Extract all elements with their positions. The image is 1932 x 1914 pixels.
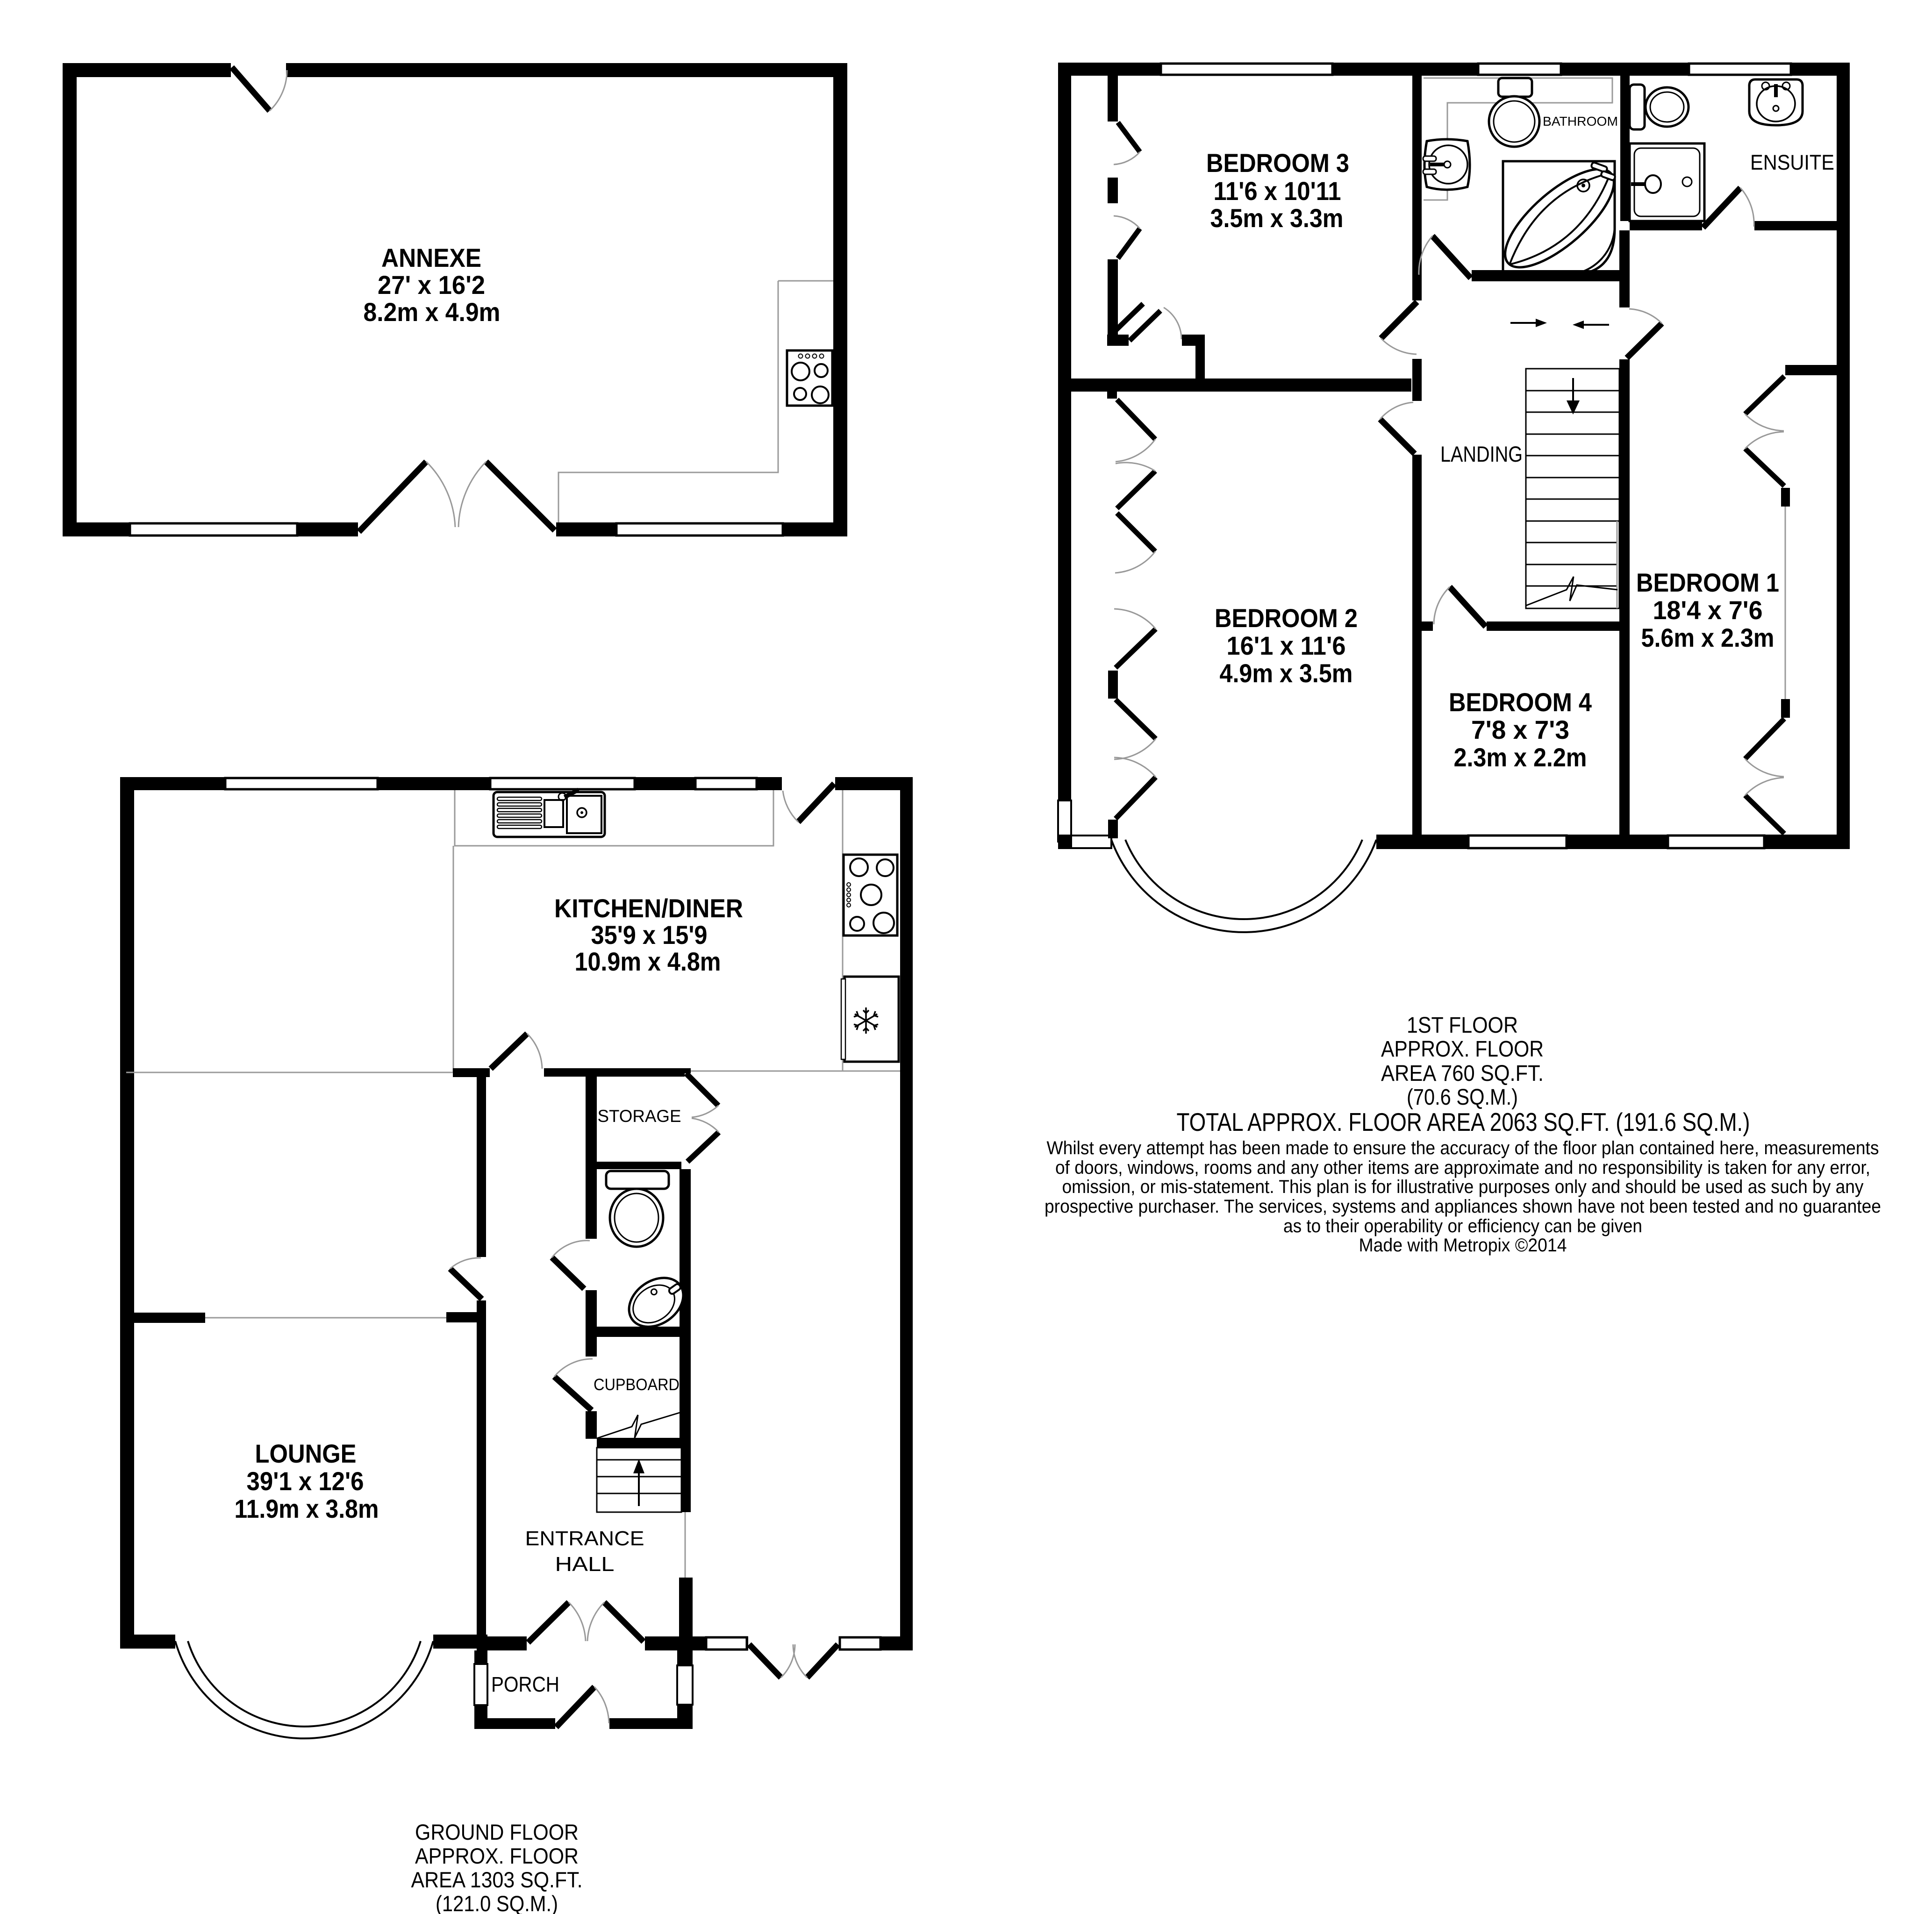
svg-text:11'6 x 10'11: 11'6 x 10'11 [1214, 176, 1341, 206]
svg-text:CUPBOARD: CUPBOARD [594, 1376, 680, 1394]
svg-text:omission, or mis-statement. Th: omission, or mis-statement. This plan is… [1062, 1177, 1864, 1197]
svg-text:27' x 16'2: 27' x 16'2 [378, 270, 485, 300]
svg-text:3.5m x 3.3m: 3.5m x 3.3m [1210, 203, 1344, 233]
svg-text:TOTAL APPROX. FLOOR AREA 2063: TOTAL APPROX. FLOOR AREA 2063 SQ.FT. (19… [1177, 1107, 1750, 1136]
svg-text:11.9m x 3.8m: 11.9m x 3.8m [235, 1494, 379, 1523]
svg-text:APPROX. FLOOR: APPROX. FLOOR [1381, 1037, 1544, 1062]
svg-text:(121.0 SQ.M.): (121.0 SQ.M.) [436, 1891, 558, 1914]
svg-text:of doors, windows, rooms and a: of doors, windows, rooms and any other i… [1055, 1157, 1870, 1178]
svg-text:(70.6 SQ.M.): (70.6 SQ.M.) [1407, 1085, 1518, 1110]
svg-text:BEDROOM 3: BEDROOM 3 [1206, 148, 1349, 178]
svg-text:LANDING: LANDING [1440, 442, 1523, 466]
svg-text:HALL: HALL [555, 1553, 615, 1576]
svg-text:APPROX. FLOOR: APPROX. FLOOR [415, 1843, 579, 1868]
svg-text:18'4 x 7'6: 18'4 x 7'6 [1653, 595, 1763, 625]
svg-text:BATHROOM: BATHROOM [1543, 114, 1618, 129]
svg-text:16'1 x 11'6: 16'1 x 11'6 [1227, 631, 1346, 660]
svg-text:LOUNGE: LOUNGE [255, 1439, 357, 1468]
svg-text:4.9m x 3.5m: 4.9m x 3.5m [1220, 658, 1353, 688]
svg-text:PORCH: PORCH [491, 1672, 559, 1696]
svg-text:ENSUITE: ENSUITE [1750, 150, 1834, 174]
svg-text:BEDROOM 1: BEDROOM 1 [1636, 568, 1779, 597]
svg-text:Made with Metropix ©2014: Made with Metropix ©2014 [1359, 1235, 1567, 1256]
svg-text:39'1 x 12'6: 39'1 x 12'6 [247, 1466, 364, 1496]
svg-text:KITCHEN/DINER: KITCHEN/DINER [554, 893, 743, 923]
svg-text:AREA 1303 SQ.FT.: AREA 1303 SQ.FT. [411, 1867, 583, 1892]
svg-text:ANNEXE: ANNEXE [381, 243, 481, 272]
svg-text:as to their operability or eff: as to their operability or efficiency ca… [1283, 1216, 1642, 1236]
svg-text:2.3m x 2.2m: 2.3m x 2.2m [1454, 743, 1587, 772]
svg-text:35'9 x 15'9: 35'9 x 15'9 [591, 920, 708, 950]
svg-text:GROUND FLOOR: GROUND FLOOR [415, 1820, 579, 1844]
svg-text:8.2m x 4.9m: 8.2m x 4.9m [364, 297, 501, 327]
svg-text:10.9m x 4.8m: 10.9m x 4.8m [575, 947, 721, 976]
svg-text:Whilst every attempt has been: Whilst every attempt has been made to en… [1047, 1138, 1879, 1158]
svg-text:AREA 760 SQ.FT.: AREA 760 SQ.FT. [1381, 1061, 1544, 1086]
svg-text:BEDROOM 4: BEDROOM 4 [1449, 687, 1592, 717]
svg-text:prospective purchaser. The ser: prospective purchaser. The services, sys… [1045, 1196, 1881, 1217]
svg-text:BEDROOM 2: BEDROOM 2 [1215, 603, 1358, 633]
svg-text:STORAGE: STORAGE [598, 1107, 681, 1126]
svg-text:7'8 x 7'3: 7'8 x 7'3 [1471, 715, 1569, 744]
svg-text:ENTRANCE: ENTRANCE [525, 1527, 644, 1550]
svg-text:1ST FLOOR: 1ST FLOOR [1407, 1013, 1518, 1038]
svg-text:5.6m x 2.3m: 5.6m x 2.3m [1641, 623, 1775, 652]
